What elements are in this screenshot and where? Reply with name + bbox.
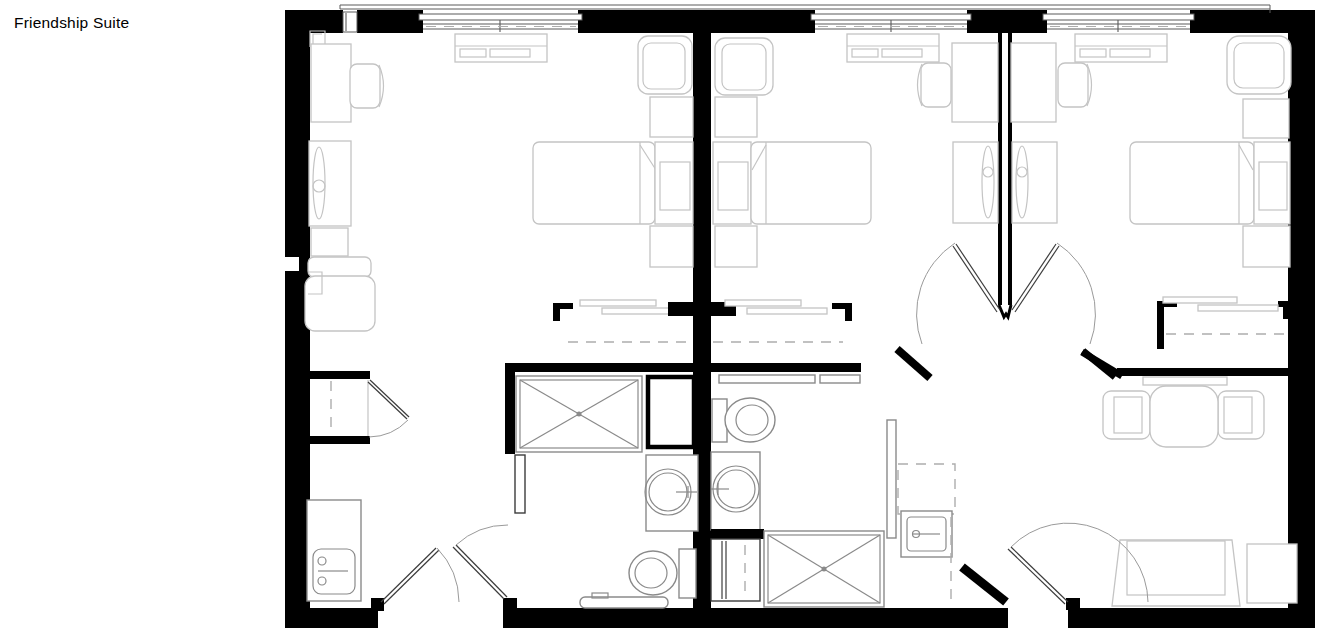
closet-right-room — [1082, 297, 1315, 376]
tv-cabinet — [953, 142, 998, 223]
nightstand — [1243, 99, 1289, 138]
headboard — [655, 142, 693, 224]
desk — [952, 43, 998, 122]
bathroom-door — [515, 455, 525, 513]
corner-armchair — [1227, 36, 1291, 94]
coat-closet — [308, 371, 409, 444]
nightstand — [650, 226, 693, 267]
entry-door — [1011, 547, 1068, 602]
table-with-chairs — [1103, 386, 1264, 447]
vanity-sink — [711, 452, 760, 530]
closet-door — [368, 382, 407, 419]
window-c — [1043, 14, 1194, 32]
angled-wall — [1083, 351, 1115, 377]
toilet — [712, 398, 775, 442]
suite-right-bedroom-1 — [713, 34, 998, 267]
chair — [1218, 391, 1264, 439]
loveseat — [1112, 540, 1240, 606]
window-console — [455, 34, 547, 62]
suite-left-entry — [371, 525, 517, 611]
side-table — [311, 228, 348, 256]
table — [1150, 386, 1218, 447]
shower — [764, 531, 884, 607]
nightstand — [715, 226, 757, 267]
tv-cabinet — [1012, 142, 1057, 223]
suite-left-bathroom — [505, 363, 698, 608]
suite-left-bedroom — [283, 31, 693, 601]
storage-closet — [711, 539, 760, 601]
overhead-cabinet — [898, 464, 955, 514]
desk-chair — [1058, 63, 1088, 107]
bed — [1130, 142, 1290, 224]
desk — [1011, 43, 1056, 122]
toilet — [629, 549, 696, 598]
utility-sink-station — [887, 420, 955, 603]
closet-door-panel — [747, 308, 827, 314]
side-table — [1247, 544, 1297, 603]
closet-left-suite — [553, 300, 693, 342]
armchair — [638, 36, 692, 94]
vanity-sink — [645, 455, 698, 531]
suite-right-bathroom — [711, 375, 1006, 607]
armchair — [715, 38, 773, 95]
bed — [713, 142, 871, 224]
angled-wall — [897, 349, 930, 378]
chair — [1103, 391, 1150, 439]
partition-point — [999, 305, 1011, 317]
closet-middle-room — [711, 300, 861, 372]
closet-door-panel — [580, 300, 656, 306]
window-console — [1075, 34, 1167, 62]
grab-pole — [887, 420, 896, 538]
linen-shaft — [648, 377, 694, 447]
desk-chair — [350, 64, 380, 108]
shower — [516, 376, 642, 452]
desk — [311, 44, 351, 122]
bathroom-door-swing — [456, 545, 507, 597]
floor-plan-page: Friendship Suite — [0, 0, 1323, 635]
wall-shelf — [1143, 377, 1227, 385]
window-b — [811, 14, 971, 32]
swing-door-left — [956, 244, 1000, 310]
window-a — [419, 14, 582, 32]
wall-recess — [283, 257, 299, 271]
desk-chair — [921, 63, 951, 107]
wall-shelf — [719, 375, 815, 383]
closet-door-panel — [1163, 297, 1237, 303]
wall-shelf — [820, 375, 860, 383]
swing-door-right — [1012, 244, 1056, 310]
window-slot — [343, 12, 357, 32]
bed — [533, 142, 693, 224]
window-console — [847, 34, 939, 62]
floor-plan-canvas — [0, 0, 1323, 635]
in-room-sink-cabinet — [307, 500, 361, 601]
entry-door — [381, 548, 436, 602]
closet-door-panel — [725, 300, 801, 306]
nightstand — [1243, 226, 1290, 267]
nightstand — [715, 97, 757, 137]
closet-door-panel — [1198, 305, 1278, 311]
towel-bench — [580, 597, 668, 608]
headboard — [713, 142, 751, 224]
suite-right-bedroom-2 — [1011, 34, 1297, 606]
nightstand — [650, 97, 693, 137]
angled-wall — [962, 567, 1006, 602]
